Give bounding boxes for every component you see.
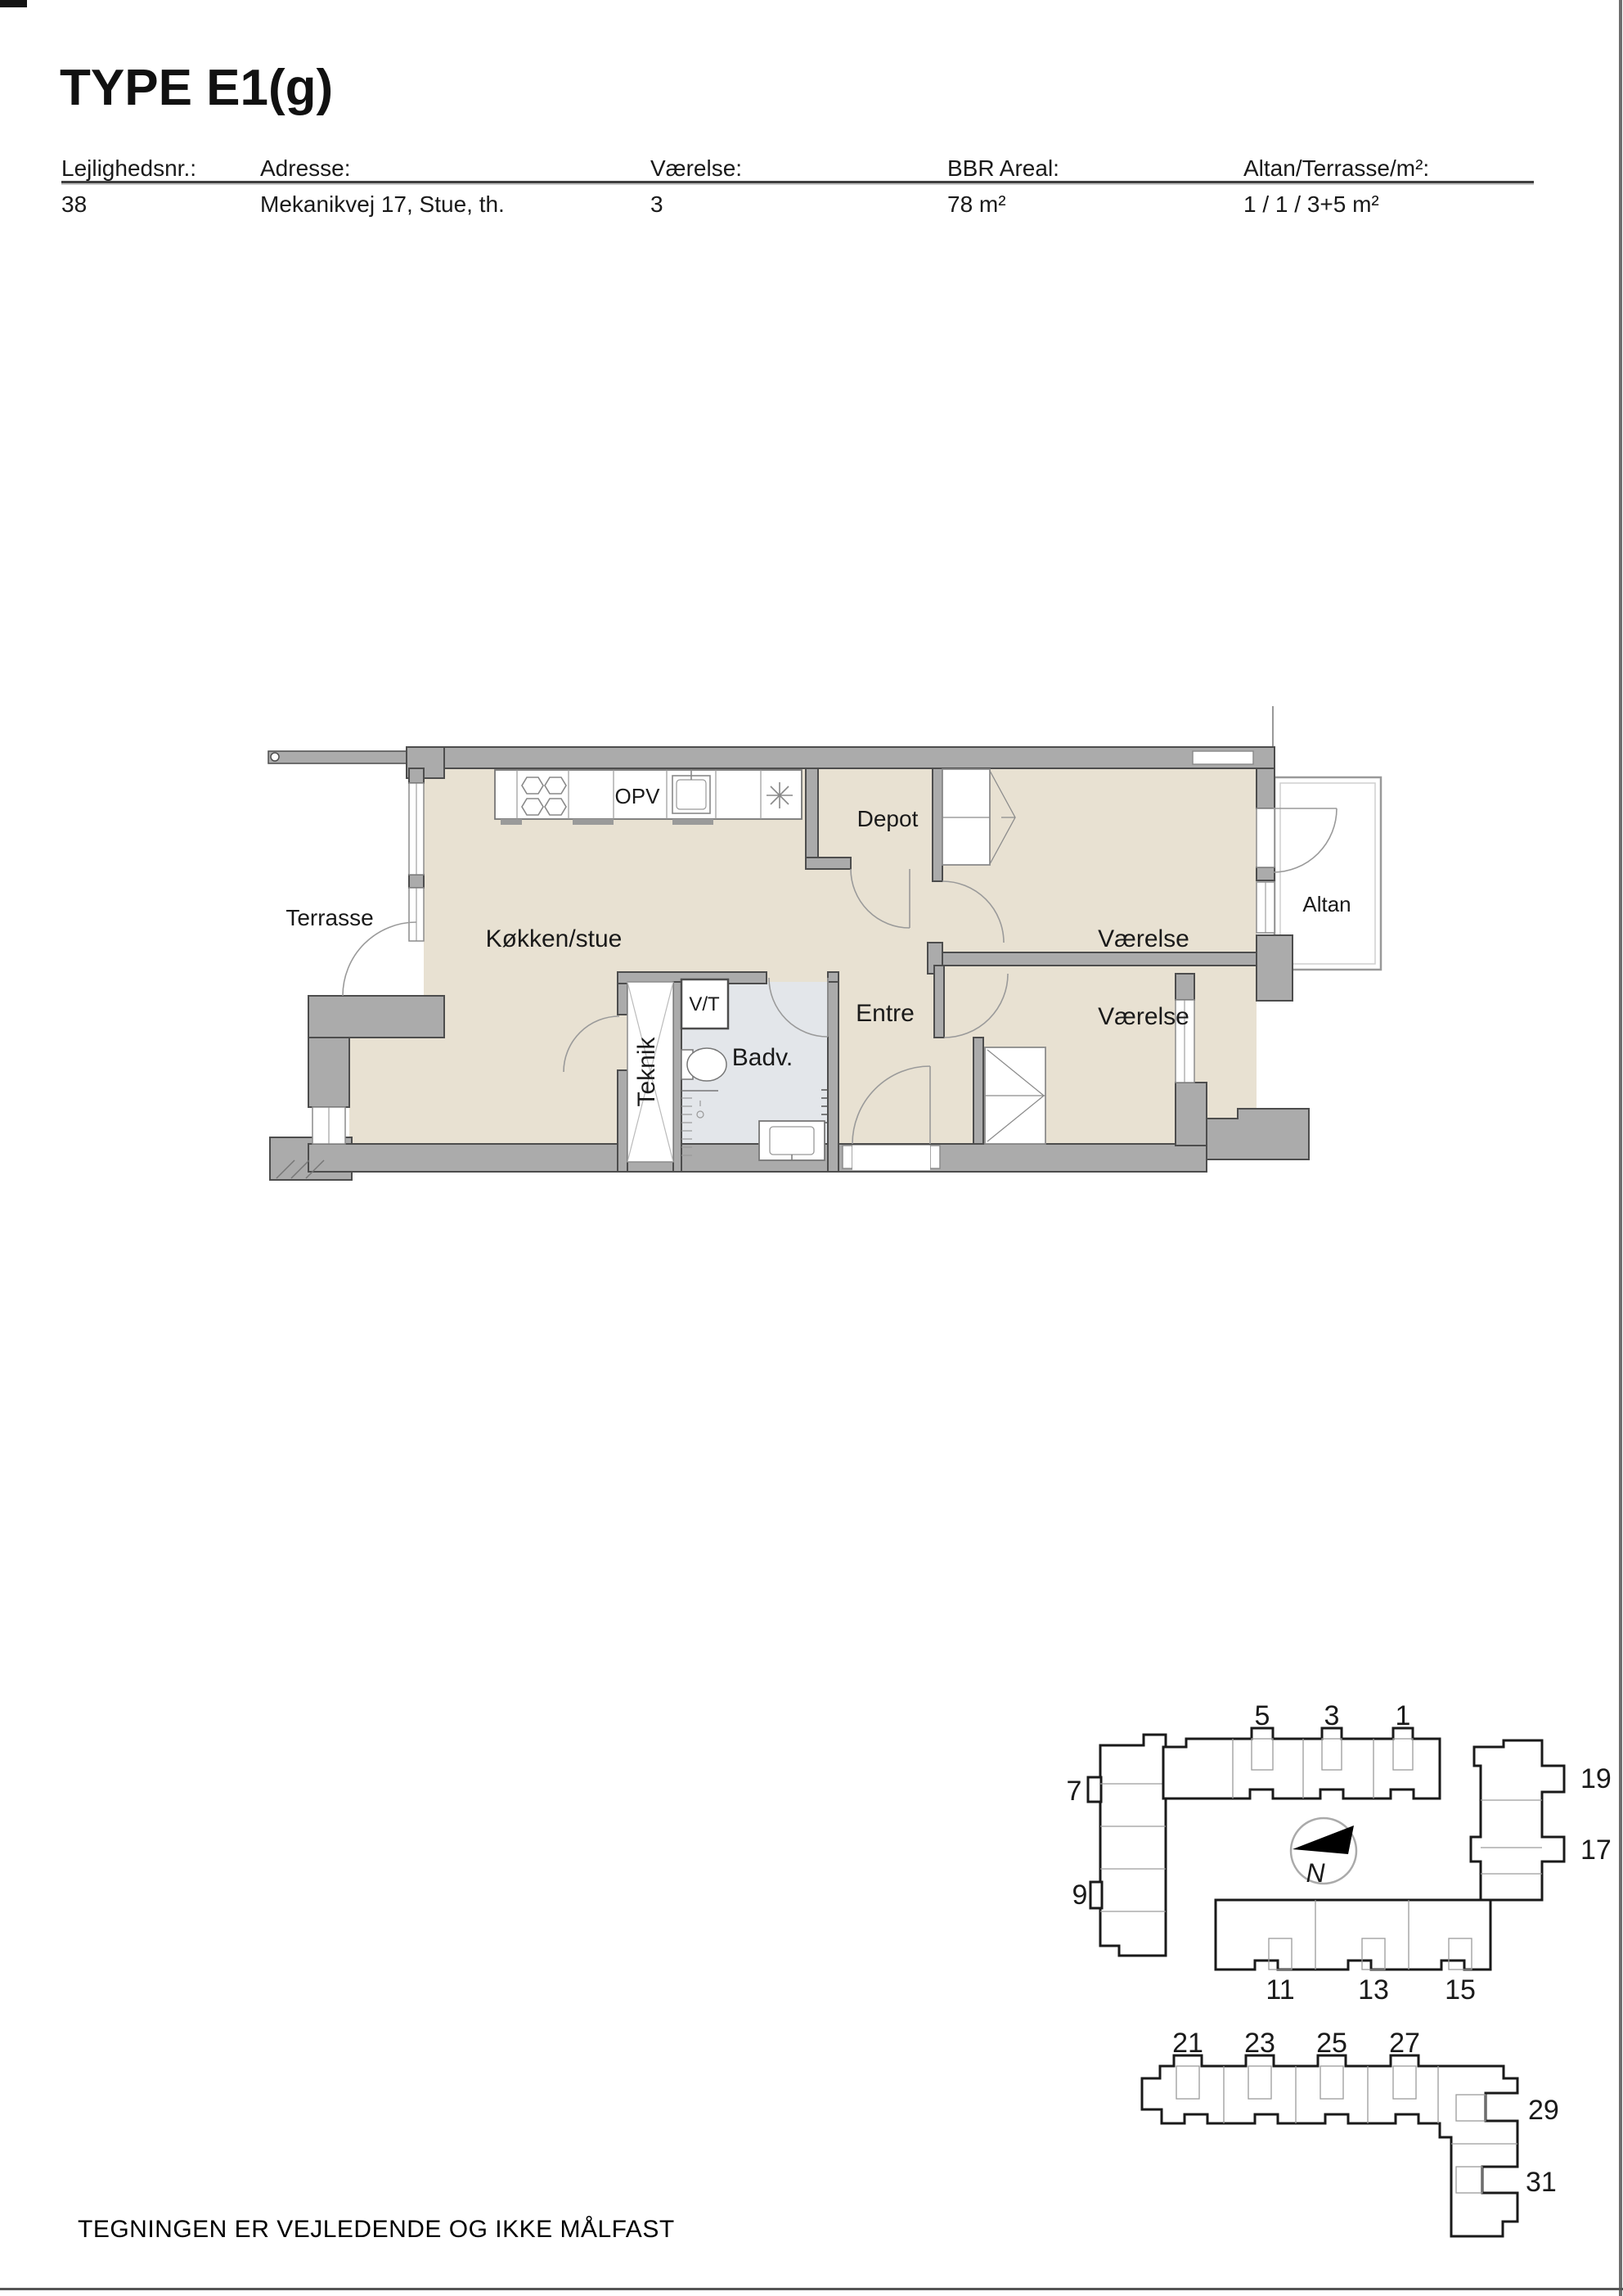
room-label-entry: Entre	[856, 1000, 915, 1027]
floor-lower-left	[349, 1038, 427, 1144]
building-number-19: 19	[1580, 1763, 1612, 1794]
building-number-27: 27	[1389, 2028, 1420, 2059]
building-number-23: 23	[1244, 2028, 1275, 2059]
room-label-kitchen-living: Køkken/stue	[486, 925, 623, 952]
building-number-7: 7	[1067, 1776, 1082, 1807]
terrace-rail-post	[271, 753, 279, 761]
site-plan-lower: 21 23 25 27 29 31	[1142, 2028, 1559, 2236]
building-west	[1100, 1735, 1166, 1956]
building-number-29: 29	[1528, 2095, 1559, 2126]
building-number-11: 11	[1266, 1974, 1294, 2006]
corner-mark	[0, 0, 27, 7]
compass-label: N	[1306, 1858, 1325, 1888]
page-bottom-border	[0, 2288, 1623, 2290]
floor-plan: Køkken/stue Terrasse Depot Værelse Værel…	[268, 706, 1381, 1180]
building-number-21: 21	[1172, 2028, 1203, 2059]
north-compass: N	[1291, 1818, 1356, 1888]
room-label-tech: Teknik	[633, 1036, 660, 1106]
building-number-5: 5	[1255, 1700, 1270, 1731]
room-label-vt: V/T	[689, 993, 720, 1015]
building-number-25: 25	[1316, 2028, 1347, 2059]
room-label-depot: Depot	[857, 806, 919, 831]
room-label-bathroom: Badv.	[732, 1044, 794, 1071]
building-number-31: 31	[1526, 2167, 1557, 2198]
sink-icon	[672, 770, 710, 813]
terrace-rail	[268, 751, 407, 763]
room-label-balcony: Altan	[1302, 892, 1351, 916]
drawing-canvas: Køkken/stue Terrasse Depot Værelse Værel…	[0, 0, 1623, 2296]
footer-disclaimer: TEGNINGEN ER VEJLEDENDE OG IKKE MÅLFAST	[78, 2216, 675, 2244]
building-number-15: 15	[1445, 1974, 1476, 2006]
bath-sink-icon	[759, 1121, 825, 1160]
room-label-bedroom-upper: Værelse	[1098, 925, 1189, 952]
room-label-terrace: Terrasse	[285, 905, 373, 930]
toilet-icon	[681, 1048, 726, 1081]
page-right-border	[1619, 0, 1622, 2296]
building-east	[1471, 1740, 1564, 1900]
building-number-9: 9	[1072, 1880, 1088, 1911]
room-label-dishwasher: OPV	[615, 784, 661, 808]
floorplan-sheet: { "page": { "title": "TYPE E1(g)", "foot…	[0, 0, 1623, 2296]
room-label-bedroom-lower: Værelse	[1098, 1003, 1189, 1030]
building-number-3: 3	[1324, 1700, 1340, 1731]
site-plan-upper: N 5 3 1 7 9 19 17 11 13 15	[1067, 1700, 1612, 2006]
building-number-17: 17	[1580, 1835, 1612, 1866]
building-l-shape	[1142, 2055, 1517, 2236]
wardrobe-lower	[985, 1047, 1045, 1144]
building-number-13: 13	[1358, 1974, 1389, 2006]
building-number-1: 1	[1396, 1700, 1411, 1731]
entrance-opening	[852, 1146, 930, 1170]
